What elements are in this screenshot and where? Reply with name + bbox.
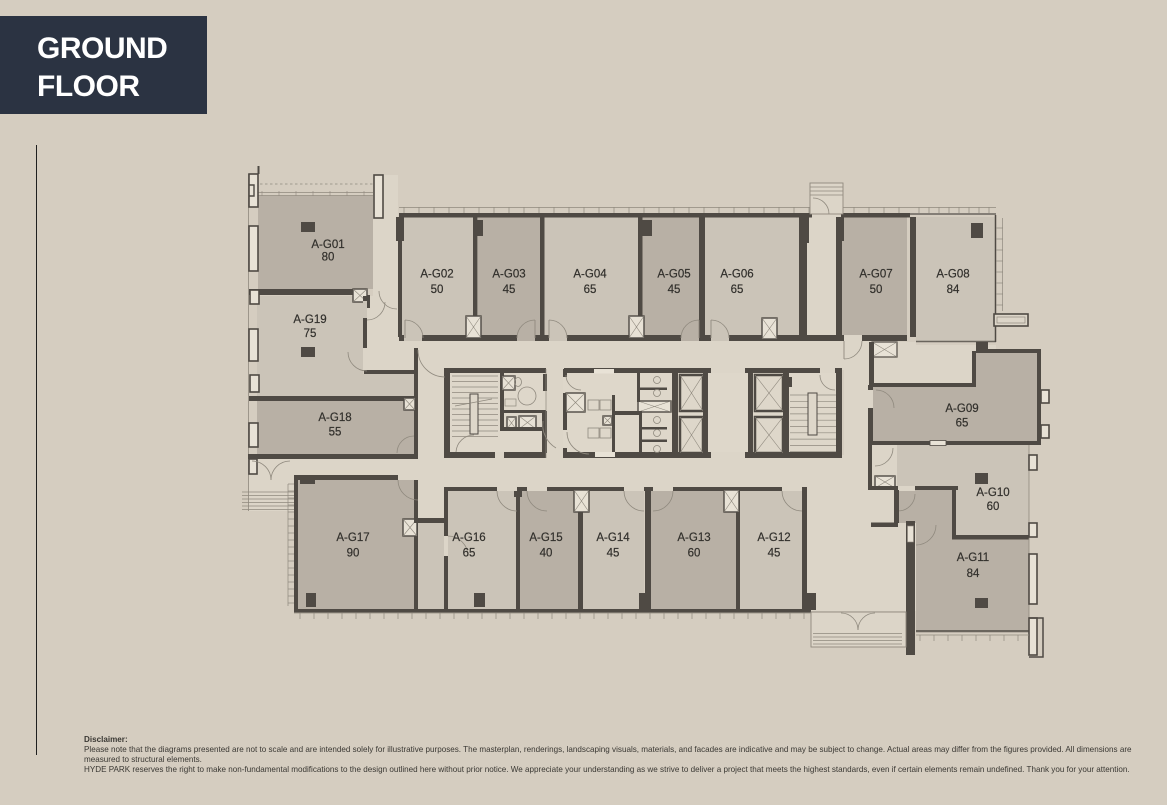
svg-text:A-G01: A-G01	[311, 239, 344, 251]
svg-text:84: 84	[947, 284, 960, 296]
svg-text:A-G09: A-G09	[945, 403, 978, 415]
svg-text:A-G17: A-G17	[336, 532, 369, 544]
svg-text:50: 50	[431, 284, 444, 296]
svg-text:A-G15: A-G15	[529, 532, 562, 544]
svg-text:45: 45	[668, 284, 681, 296]
svg-text:90: 90	[347, 548, 360, 560]
svg-text:A-G07: A-G07	[859, 269, 892, 281]
svg-text:80: 80	[322, 252, 335, 264]
svg-text:55: 55	[329, 427, 342, 439]
svg-text:A-G12: A-G12	[757, 532, 790, 544]
svg-text:A-G03: A-G03	[492, 269, 525, 281]
svg-text:65: 65	[584, 284, 597, 296]
svg-text:45: 45	[607, 548, 620, 560]
svg-text:A-G18: A-G18	[318, 412, 351, 424]
svg-text:A-G08: A-G08	[936, 269, 969, 281]
svg-text:A-G14: A-G14	[596, 532, 630, 544]
svg-text:A-G06: A-G06	[720, 269, 753, 281]
svg-text:A-G10: A-G10	[976, 487, 1009, 499]
svg-text:A-G02: A-G02	[420, 269, 453, 281]
svg-text:75: 75	[304, 328, 317, 340]
svg-text:60: 60	[688, 548, 701, 560]
svg-text:A-G11: A-G11	[957, 552, 989, 564]
svg-text:65: 65	[463, 548, 476, 560]
svg-text:A-G13: A-G13	[677, 532, 710, 544]
svg-text:50: 50	[870, 284, 883, 296]
svg-text:60: 60	[987, 501, 1000, 513]
svg-text:40: 40	[540, 548, 553, 560]
svg-text:A-G04: A-G04	[573, 269, 607, 281]
svg-text:65: 65	[731, 284, 744, 296]
svg-text:45: 45	[503, 284, 516, 296]
svg-text:A-G19: A-G19	[293, 314, 326, 326]
svg-text:65: 65	[956, 418, 969, 430]
svg-text:45: 45	[768, 548, 781, 560]
svg-text:84: 84	[967, 568, 980, 580]
svg-text:A-G16: A-G16	[452, 532, 485, 544]
svg-text:A-G05: A-G05	[657, 269, 690, 281]
